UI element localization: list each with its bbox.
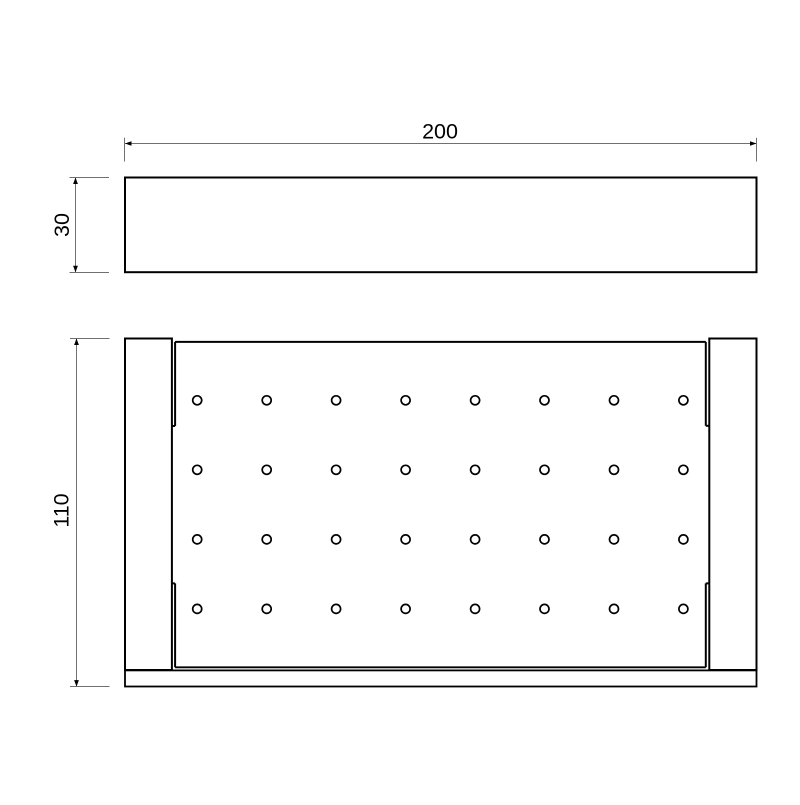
svg-text:200: 200	[422, 119, 458, 143]
svg-text:30: 30	[50, 213, 74, 237]
svg-text:110: 110	[50, 493, 74, 527]
